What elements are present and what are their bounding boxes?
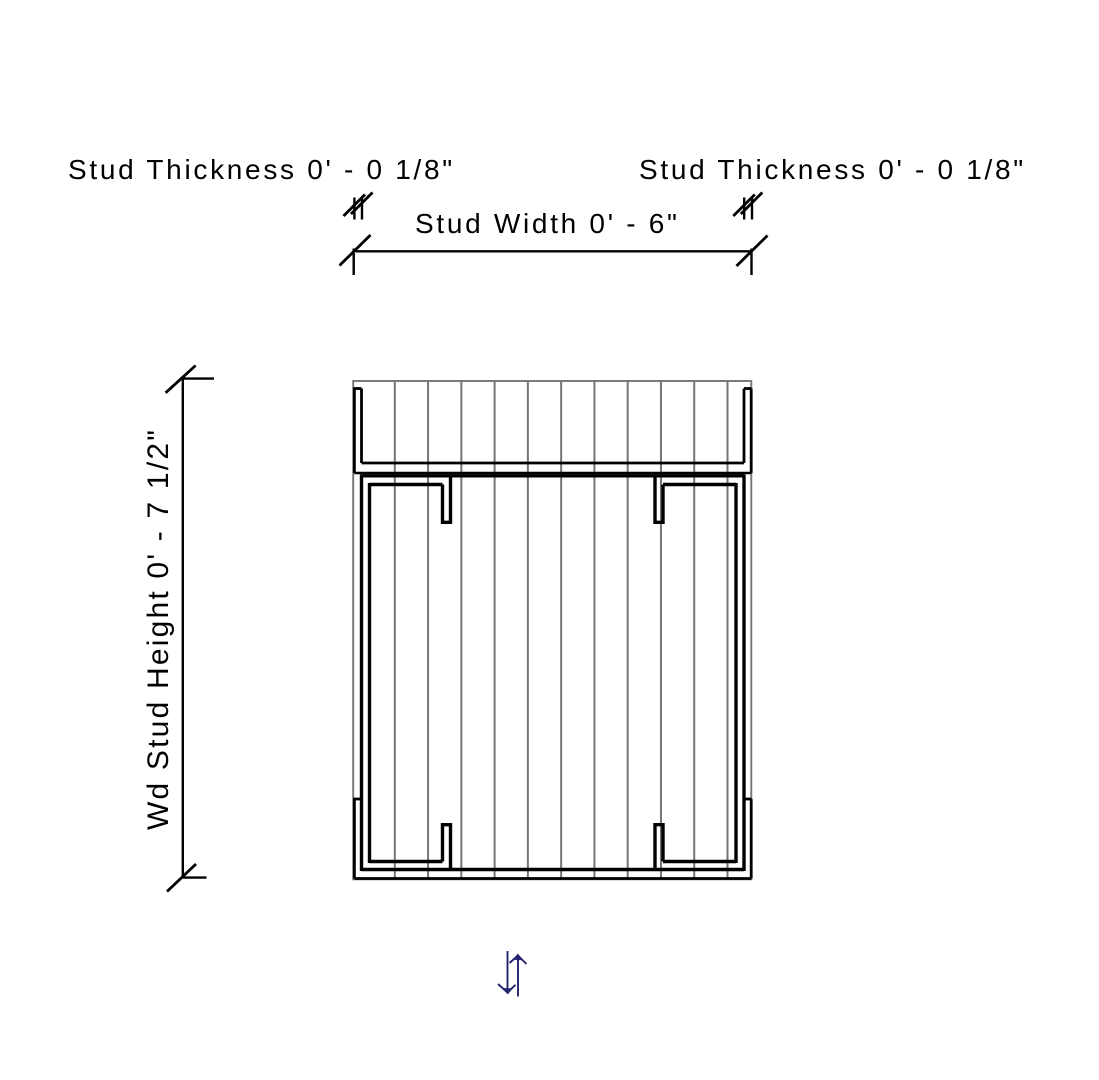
svg-text:Wd Stud Height 0' - 7 1/2": Wd Stud Height 0' - 7 1/2" — [142, 428, 175, 830]
svg-text:Stud Width 0' - 6": Stud Width 0' - 6" — [415, 208, 680, 239]
svg-text:Stud Thickness 0' - 0 1/8": Stud Thickness 0' - 0 1/8" — [68, 154, 455, 185]
svg-text:Stud Thickness 0' - 0 1/8": Stud Thickness 0' - 0 1/8" — [639, 154, 1026, 185]
